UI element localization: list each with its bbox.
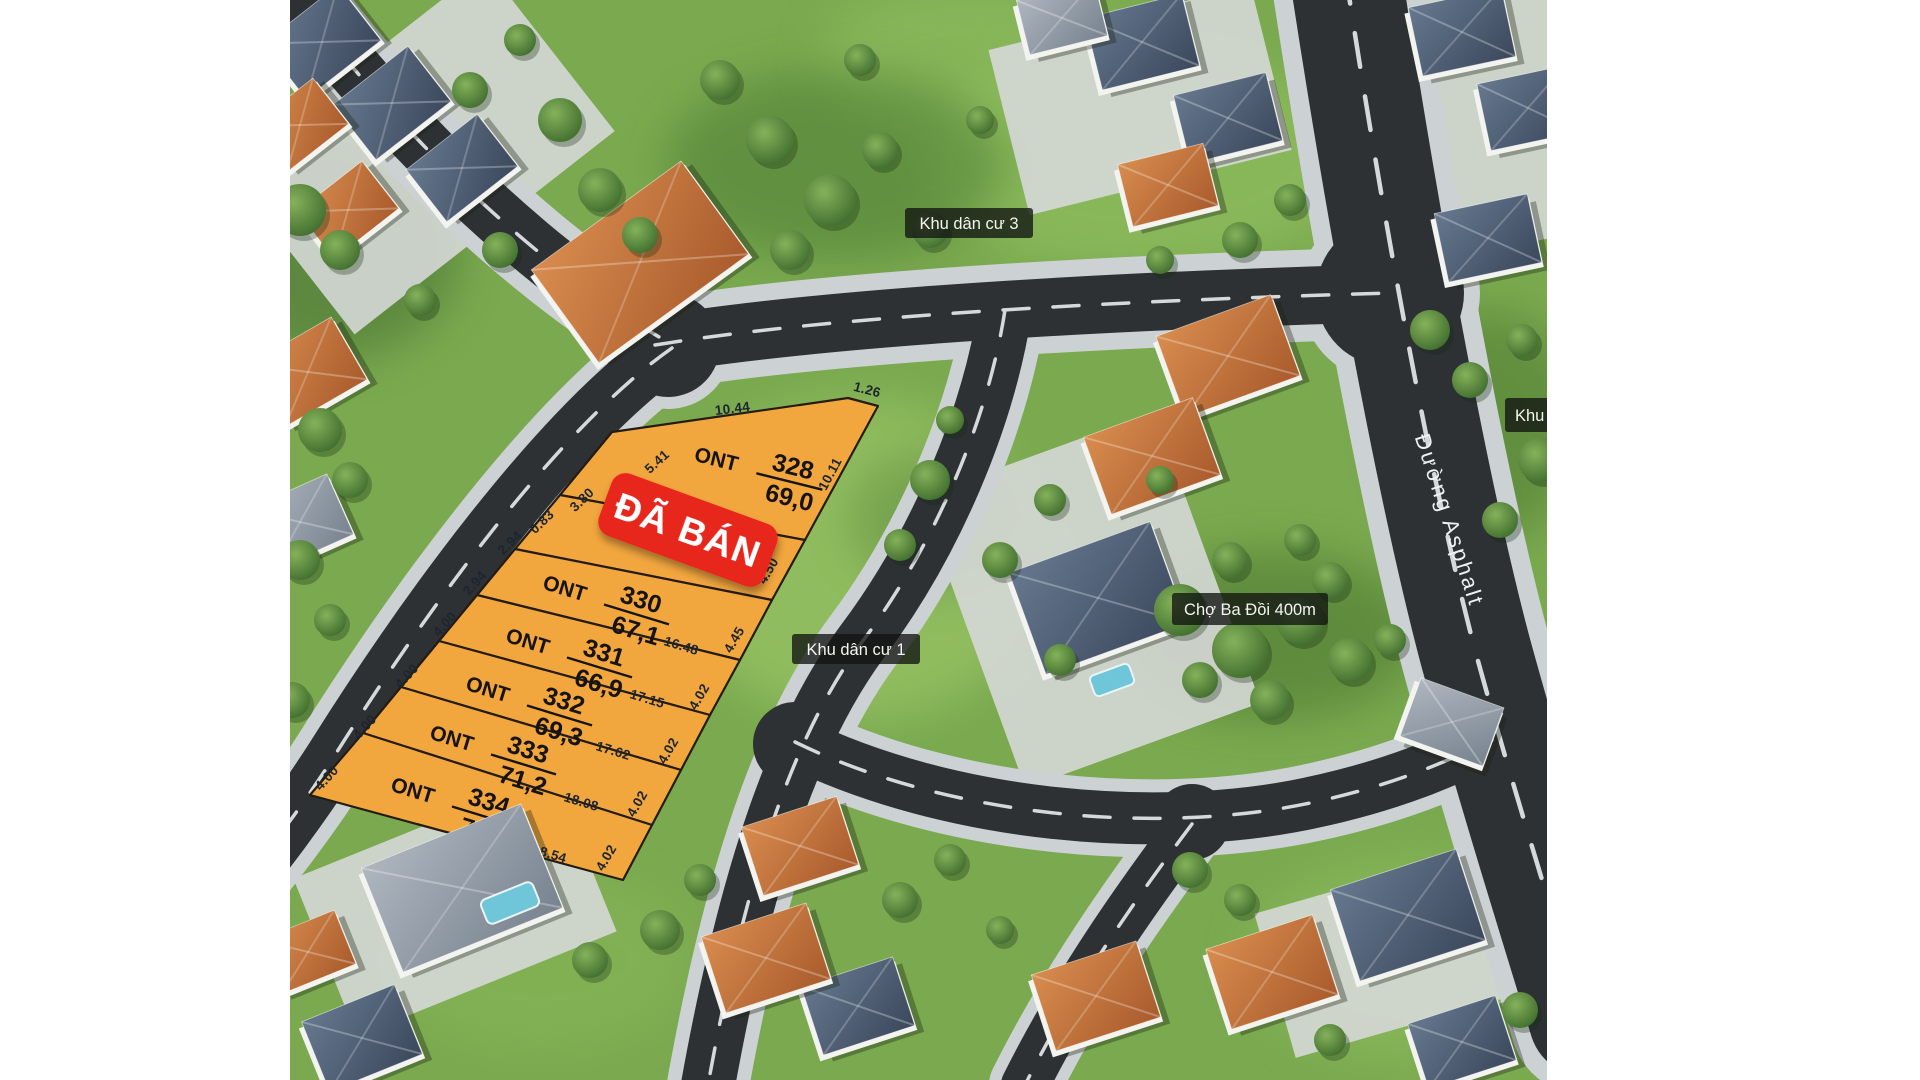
site-plan-image: ONT32869,0ONT33067,1ONT33166,9ONT33269,3… [0, 0, 1920, 1080]
area-label-khu-dan-cu-3: Khu dân cư 3 [905, 208, 1033, 238]
area-label-text: Khu dân cư 1 [806, 641, 905, 659]
area-label-clipped-right: Khu d [1505, 398, 1605, 432]
market-distance-label: Chợ Ba Đồi 400m [1172, 593, 1328, 625]
area-label-text: Khu d [1515, 407, 1558, 425]
market-distance-text: Chợ Ba Đồi 400m [1184, 601, 1316, 619]
real-estate-plot-map: ONT32869,0ONT33067,1ONT33166,9ONT33269,3… [0, 0, 1920, 1080]
area-label-khu-dan-cu-1: Khu dân cư 1 [792, 634, 920, 664]
area-label-text: Khu dân cư 3 [919, 215, 1018, 233]
